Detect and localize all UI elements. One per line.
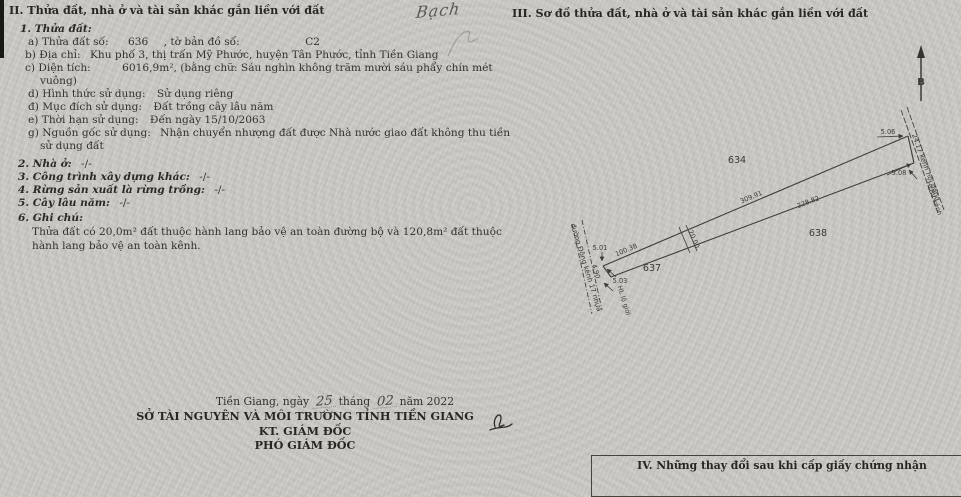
cadastral-sketch: B 634 637 638 309.91 228.82 100.38 20.00… xyxy=(0,0,961,470)
strip-bottom-line xyxy=(611,163,914,277)
north-arrow: B xyxy=(917,45,925,101)
edge-508: 5.08 xyxy=(892,169,907,177)
north-label: B xyxy=(917,77,925,88)
section4-box: IV. Những thay đổi sau khi cấp giấy chứn… xyxy=(591,455,961,497)
adjacent-parcel-634: 634 xyxy=(728,155,746,166)
edge-501: 5.01 xyxy=(593,244,608,252)
adjacent-parcel-638: 638 xyxy=(809,228,827,239)
parcel-boundary-lines xyxy=(603,136,914,277)
edge-503: 5.03 xyxy=(613,277,628,285)
edge-506: 5.06 xyxy=(881,128,896,136)
dim-bottom-length: 228.82 xyxy=(796,194,820,210)
dim-strip-width: 20.00 xyxy=(686,229,701,250)
adjacent-parcel-637: 637 xyxy=(643,263,661,274)
road-easement-label: HL lộ giới xyxy=(616,285,633,317)
certificate-scan-page: { "handwriting": { "top_note": "Bạch" },… xyxy=(0,0,961,470)
strip-top-line xyxy=(603,136,908,266)
canal-name-label: 24.17 kênh nội đồng xyxy=(910,133,942,202)
